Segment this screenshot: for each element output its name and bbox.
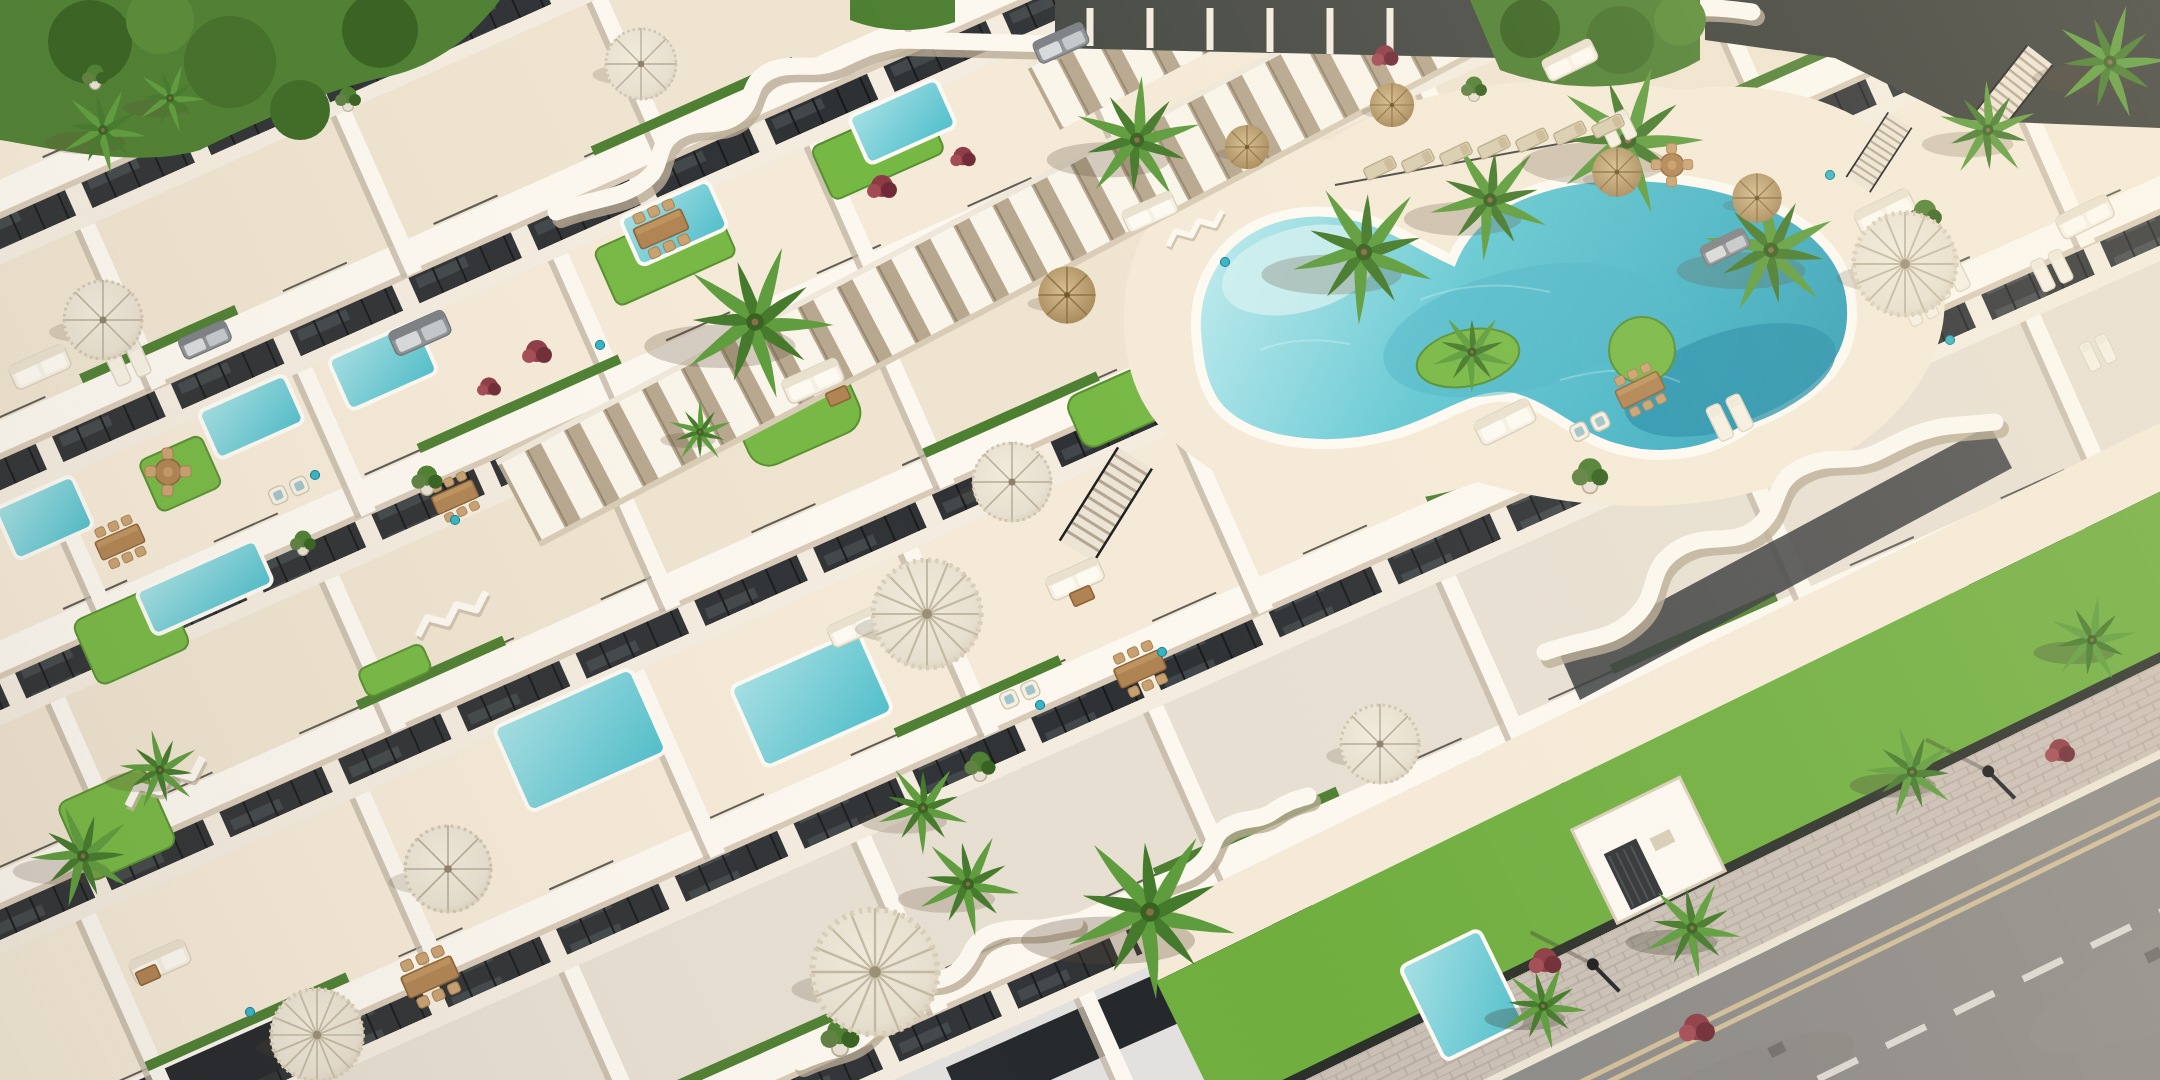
sunlight-overlay (0, 0, 2160, 1080)
aerial-render (0, 0, 2160, 1080)
scene-canvas (0, 0, 2160, 1080)
